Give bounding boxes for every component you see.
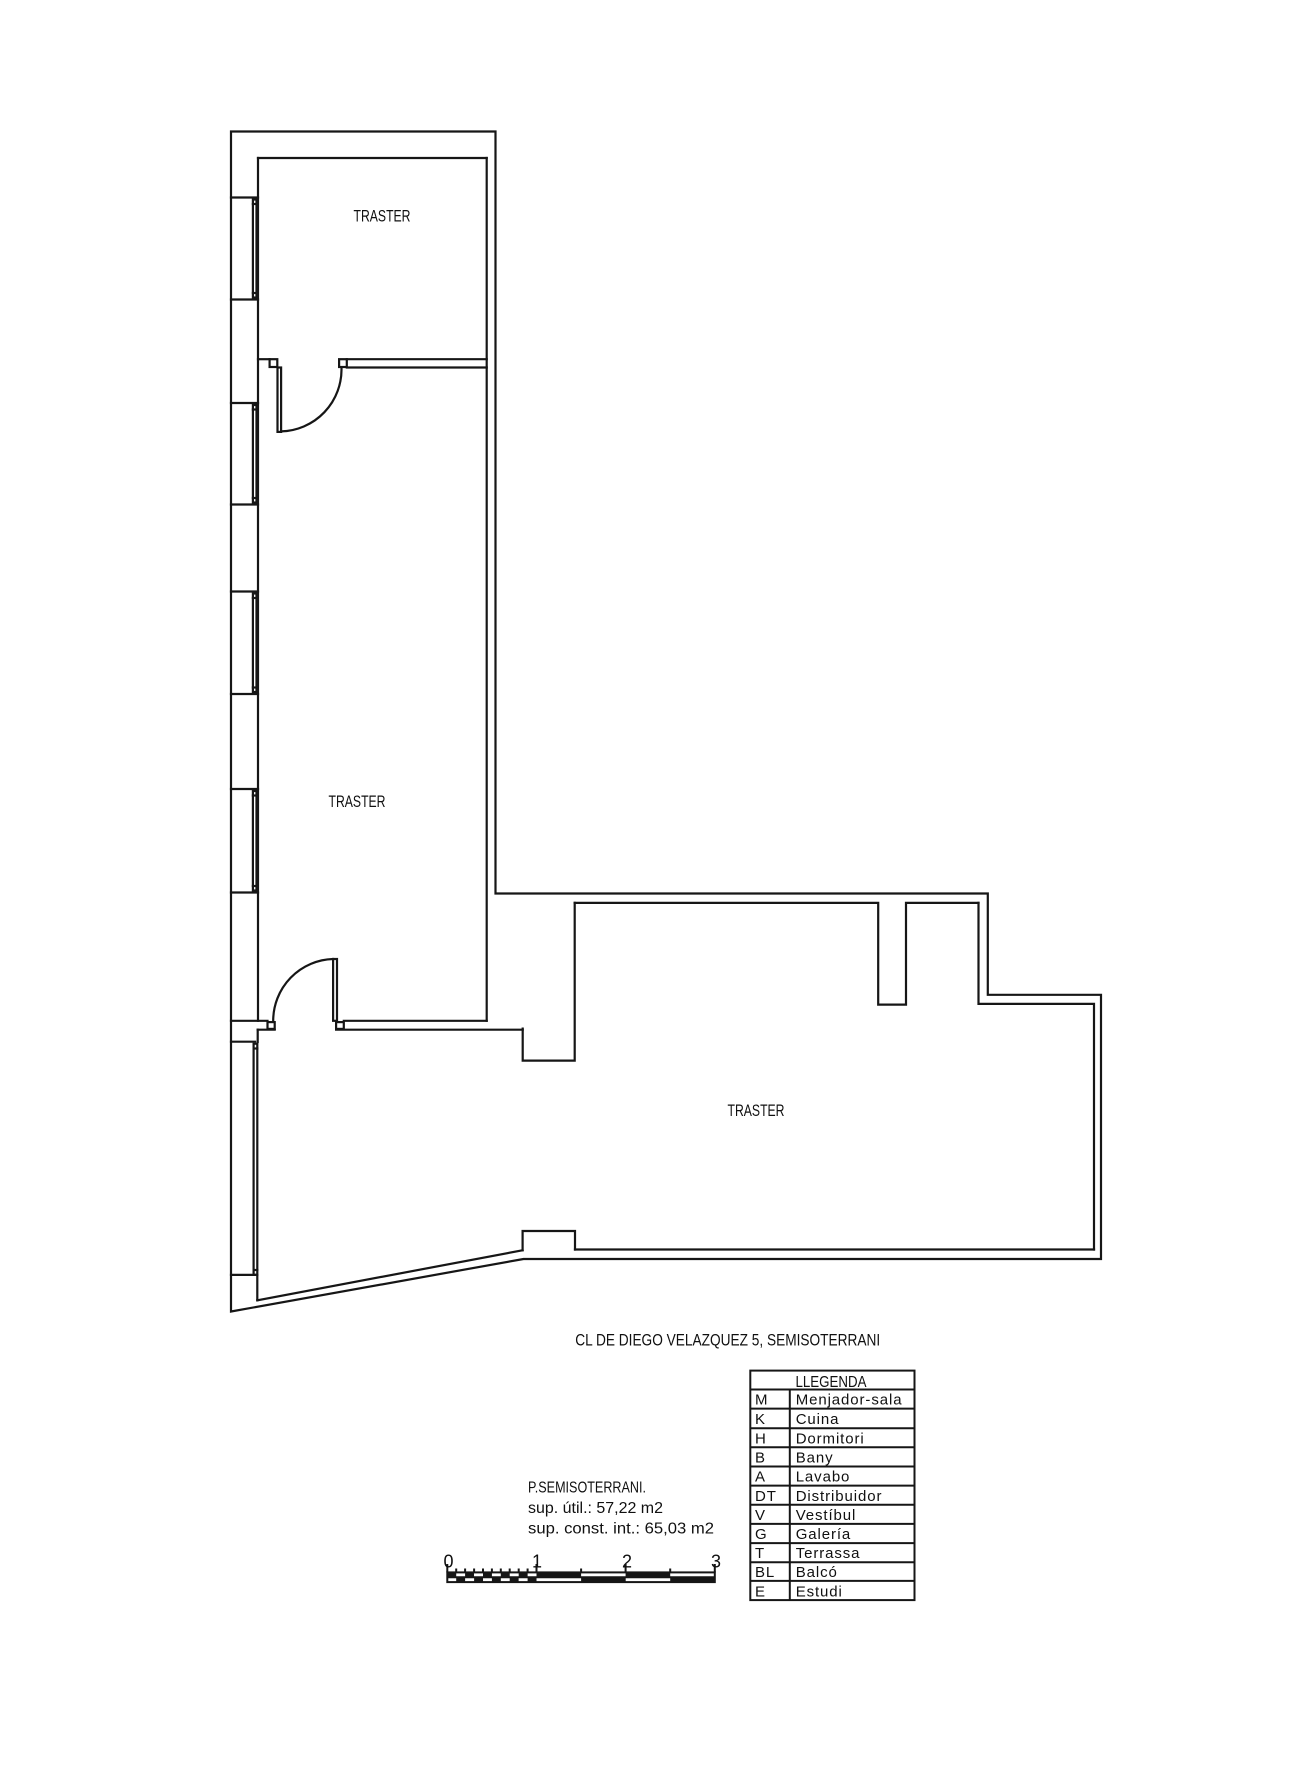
svg-text:T: T (755, 1545, 765, 1562)
svg-text:Galería: Galería (796, 1526, 852, 1543)
svg-text:TRASTER: TRASTER (728, 1101, 785, 1120)
svg-text:E: E (755, 1583, 766, 1600)
svg-text:0: 0 (443, 1552, 453, 1572)
svg-text:DT: DT (755, 1488, 777, 1505)
svg-text:Menjador-sala: Menjador-sala (796, 1392, 903, 1409)
svg-text:Balcó: Balcó (796, 1564, 838, 1581)
svg-text:BL: BL (755, 1564, 775, 1581)
svg-text:P.SEMISOTERRANI.: P.SEMISOTERRANI. (528, 1480, 646, 1497)
svg-text:B: B (755, 1450, 766, 1467)
svg-text:V: V (755, 1507, 766, 1524)
svg-text:Vestíbul: Vestíbul (796, 1507, 857, 1524)
svg-text:Bany: Bany (796, 1450, 834, 1467)
svg-text:TRASTER: TRASTER (354, 207, 411, 226)
svg-text:Dormitori: Dormitori (796, 1430, 865, 1447)
svg-text:Cuina: Cuina (796, 1411, 840, 1428)
svg-text:Terrassa: Terrassa (796, 1545, 861, 1562)
svg-text:sup. const. int.: 65,03 m2: sup. const. int.: 65,03 m2 (528, 1521, 714, 1538)
svg-text:CL DE DIEGO VELAZQUEZ 5, SEMIS: CL DE DIEGO VELAZQUEZ 5, SEMISOTERRANI (575, 1331, 880, 1350)
svg-text:Distribuidor: Distribuidor (796, 1488, 883, 1505)
svg-text:1: 1 (532, 1552, 542, 1572)
svg-text:TRASTER: TRASTER (329, 792, 386, 811)
svg-text:2: 2 (622, 1552, 632, 1572)
svg-text:A: A (755, 1469, 766, 1486)
svg-text:M: M (755, 1392, 768, 1409)
svg-text:G: G (755, 1526, 768, 1543)
svg-text:LLEGENDA: LLEGENDA (796, 1374, 867, 1391)
svg-text:H: H (755, 1430, 767, 1447)
svg-text:Estudi: Estudi (796, 1583, 843, 1600)
svg-text:3: 3 (711, 1552, 721, 1572)
svg-text:K: K (755, 1411, 766, 1428)
svg-text:Lavabo: Lavabo (796, 1469, 851, 1486)
svg-text:sup. útil.: 57,22 m2: sup. útil.: 57,22 m2 (528, 1500, 663, 1517)
